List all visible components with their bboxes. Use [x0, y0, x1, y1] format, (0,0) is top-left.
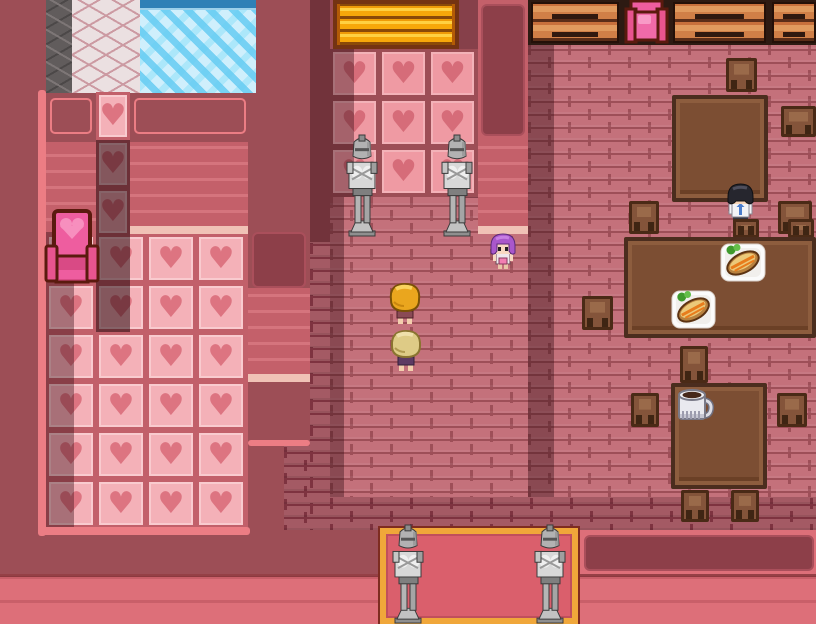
- heart-tile: ♥: [199, 335, 243, 378]
- heart-tile: ♥: [149, 433, 193, 476]
- divider-wall-base: [248, 382, 310, 444]
- heart-tile: ♥: [149, 335, 193, 378]
- pink-border-left: [38, 90, 46, 536]
- south-wall-panel-right: [584, 535, 814, 571]
- heart-tile: ♥: [99, 335, 143, 378]
- tan-haired-kid-sprite: [388, 327, 424, 373]
- knight-statue-icon: [531, 524, 569, 624]
- golden-gate[interactable]: [333, 0, 459, 49]
- south-wainscot-right: [578, 574, 816, 624]
- pitcher-icon: [674, 385, 715, 424]
- shadow-heart-column: [96, 140, 130, 332]
- knight-statue-left: [343, 134, 381, 237]
- right-wall-stripes: [478, 136, 528, 226]
- hall-left-wall-shadow: [310, 0, 330, 242]
- hall-floor-shadow-strip: [310, 242, 330, 530]
- blonde-kid-sprite: [386, 280, 424, 326]
- heart-tile: ♥: [199, 384, 243, 427]
- chair-east-of-table3: [777, 393, 807, 427]
- cobblestone-wall: [72, 0, 140, 93]
- knight-statue-icon: [438, 134, 476, 237]
- water-pitcher: [674, 385, 715, 424]
- food-plate-1: [718, 241, 768, 284]
- chair-east-of-table1: [781, 106, 816, 137]
- stone-wall-strip: [46, 0, 72, 93]
- heart-tile: ♥: [199, 482, 243, 525]
- divider-wall-stripes: [248, 288, 310, 374]
- chair-top-behind-table2-a: [733, 219, 759, 238]
- heart-tile: ♥: [99, 95, 127, 137]
- hotdog-plate-icon: [718, 241, 768, 284]
- right-wall-panel: [481, 4, 525, 136]
- knight-statue-entrance-right: [531, 524, 569, 624]
- south-wainscot-left: [0, 574, 380, 624]
- chair-top-behind-table2-b: [788, 219, 814, 238]
- wooden-bench-2: [673, 2, 766, 43]
- knight-statue-icon: [389, 524, 427, 624]
- knight-statue-right: [438, 134, 476, 237]
- cream-trim-left-room: [130, 226, 248, 234]
- heart-tile: ♥: [149, 384, 193, 427]
- npc-purple-haired-girl[interactable]: [487, 232, 519, 272]
- chair-south-of-table3-a: [681, 490, 709, 522]
- water-pool: [140, 0, 256, 93]
- chair-south-of-table3-b: [731, 490, 759, 522]
- heart-tile: ♥: [199, 237, 243, 280]
- chair-sw-of-table1: [629, 201, 659, 234]
- chair-west-of-table3: [631, 393, 659, 427]
- knight-statue-entrance-left: [389, 524, 427, 624]
- chair-west-of-table2: [582, 296, 613, 330]
- heart-tile: ♥: [382, 150, 425, 193]
- hotdog-plate-icon: [669, 288, 718, 331]
- pink-throne[interactable]: [44, 208, 100, 288]
- chair-south-of-table2: [680, 346, 708, 383]
- heart-tile: ♥: [149, 286, 193, 329]
- purple-girl-sprite: [487, 232, 519, 272]
- heart-tile: ♥: [149, 237, 193, 280]
- food-plate-2: [669, 288, 718, 331]
- heart-tile: ♥: [99, 384, 143, 427]
- wall-inset-right: [134, 98, 246, 134]
- npc-tan-haired-kid[interactable]: [388, 327, 424, 373]
- dining-wall-shadow: [528, 43, 554, 530]
- divider-wall-panel: [252, 232, 306, 288]
- npc-blonde-kid[interactable]: [386, 280, 424, 326]
- pink-throne-top-icon: [621, 0, 672, 46]
- game-viewport[interactable]: ♥♥♥♥♥♥♥♥♥♥♥♥♥♥♥♥♥♥♥♥♥♥♥♥♥♥♥♥♥ ♥♥♥♥♥♥♥♥♥: [0, 0, 816, 624]
- hall-floor-edge-shadow: [330, 196, 344, 530]
- heart-tile: ♥: [149, 482, 193, 525]
- divider-wall-trim: [248, 374, 310, 382]
- heart-tile: ♥: [99, 433, 143, 476]
- wooden-bench-3: [772, 2, 816, 43]
- pink-throne-top[interactable]: [621, 0, 672, 46]
- heart-tile: ♥: [199, 433, 243, 476]
- wooden-bench-1: [531, 2, 619, 43]
- pink-border-bottom: [38, 527, 250, 535]
- passage-dark-bricks: [284, 446, 310, 530]
- paneling-wall-right: [130, 142, 248, 226]
- pink-throne-icon: [44, 208, 100, 288]
- heart-tile: ♥: [382, 52, 425, 95]
- knight-statue-icon: [343, 134, 381, 237]
- heart-tile: ♥: [199, 286, 243, 329]
- heart-tile: ♥: [99, 482, 143, 525]
- heart-tile: ♥: [382, 101, 425, 144]
- chair-north-of-table1: [726, 58, 757, 92]
- heart-tile: ♥: [431, 52, 474, 95]
- wall-inset-left: [50, 98, 92, 134]
